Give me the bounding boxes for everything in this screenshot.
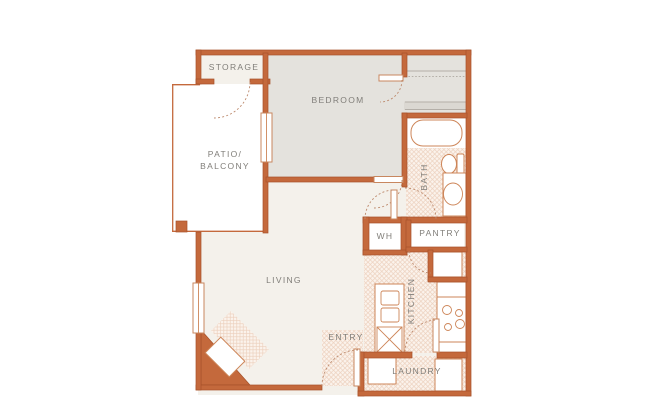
patio-label-line2: BALCONY xyxy=(200,161,250,171)
wh-label: WH xyxy=(377,231,394,241)
laundry-label: LAUNDRY xyxy=(392,366,442,376)
closet-door-leaf xyxy=(379,75,403,81)
living-label: LIVING xyxy=(266,275,302,285)
bathtub xyxy=(411,120,462,146)
kitchen-door-leaf xyxy=(433,319,439,352)
entry-label: ENTRY xyxy=(328,332,363,342)
bedroom-label: BEDROOM xyxy=(311,95,364,105)
entry-door-leaf xyxy=(354,349,360,386)
sink-vanity xyxy=(443,173,466,216)
patio-post xyxy=(176,221,187,232)
bath-label: BATH xyxy=(419,163,429,190)
hall-door-leaf xyxy=(391,190,397,219)
bedroom-floor xyxy=(266,53,404,179)
kitchen-island xyxy=(375,284,404,353)
storage-label: STORAGE xyxy=(209,62,260,72)
closet-shelf-band xyxy=(404,102,467,111)
kitchen-label: KITCHEN xyxy=(406,278,416,324)
patio-label-line1: PATIO/ xyxy=(208,149,242,159)
refrigerator xyxy=(432,252,462,277)
bedroom-door-leaf xyxy=(374,177,403,183)
window-living-left xyxy=(193,283,204,333)
floor-plan-page: STORAGE PATIO/ BALCONY BEDROOM BATH WH P… xyxy=(0,0,650,420)
window-patio-bedroom xyxy=(261,113,272,162)
pantry-label: PANTRY xyxy=(419,228,461,238)
toilet xyxy=(442,154,465,174)
floor-plan-drawing: STORAGE PATIO/ BALCONY BEDROOM BATH WH P… xyxy=(0,0,650,420)
kitchen-counter-right xyxy=(437,282,466,353)
